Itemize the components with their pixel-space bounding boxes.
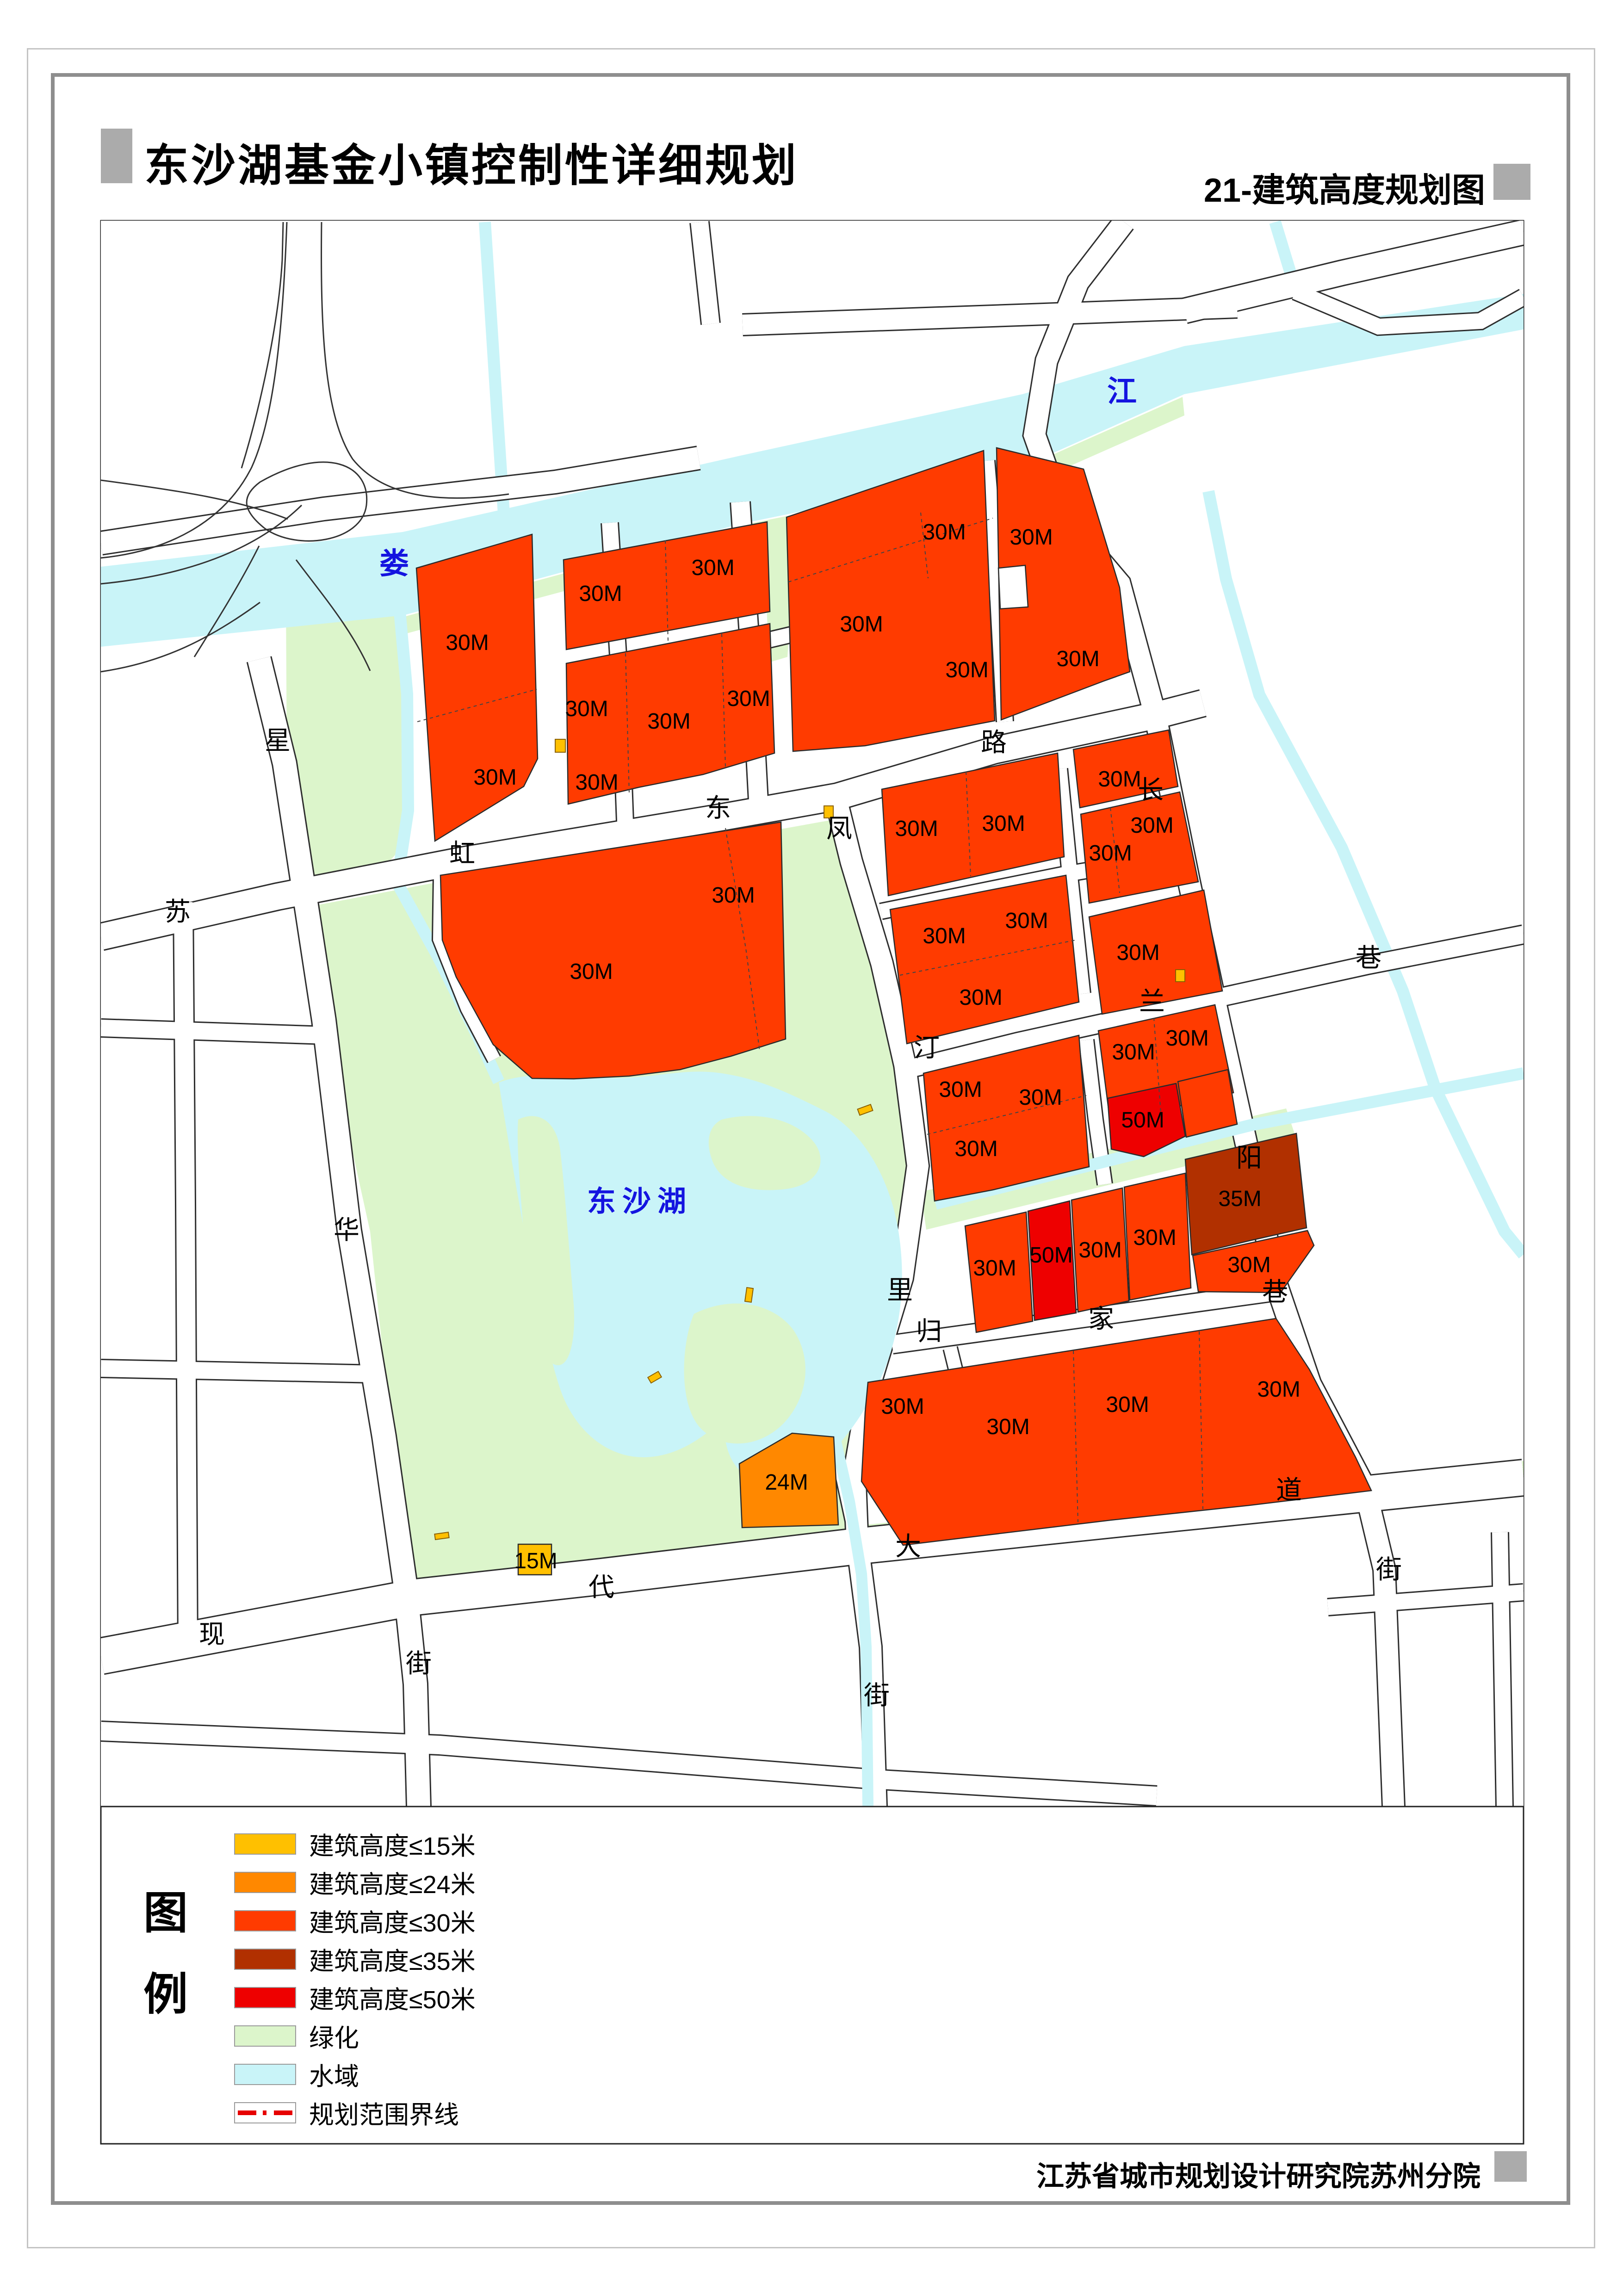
building-height-labels-item: 30M	[691, 556, 734, 580]
road-name-labels-item: 星	[265, 726, 291, 755]
legend-label: 绿化	[309, 2018, 359, 2054]
plan-sheet: 东沙湖基金小镇控制性详细规划 21-建筑高度规划图	[0, 0, 1623, 2296]
building-height-labels-item: 30M	[923, 520, 966, 545]
building-height-labels-item: 30M	[939, 1077, 982, 1102]
building-height-labels-item: 30M	[1133, 1225, 1176, 1250]
building-height-labels-item: 30M	[982, 811, 1025, 836]
building-height-labels-item: 30M	[923, 924, 966, 948]
legend-label: 建筑高度≤30米	[309, 1902, 476, 1939]
legend-label: 建筑高度≤50米	[309, 1979, 476, 2016]
legend-color-swatch	[234, 2025, 296, 2047]
legend-row: 建筑高度≤15米	[234, 1825, 476, 1863]
building-height-labels-item: 30M	[895, 817, 938, 841]
legend-label: 规划范围界线	[309, 2094, 459, 2131]
building-height-labels-item: 30M	[1056, 647, 1099, 671]
legend-row: 建筑高度≤35米	[234, 1940, 476, 1978]
legend-color-swatch	[234, 1987, 296, 2008]
road-name-labels-item: 凤	[826, 814, 852, 843]
road-name-labels-item: 家	[1088, 1304, 1114, 1333]
map-canvas: 苏虹东路星华街现代大道凤里街长阳街汀兰巷归家巷 娄江 东沙湖 30M30M30M…	[101, 221, 1524, 1807]
building-height-labels-item: 30M	[473, 765, 516, 790]
building-height-labels-item: 30M	[727, 687, 770, 711]
legend-label: 水域	[309, 2056, 359, 2092]
legend-row: 建筑高度≤30米	[234, 1901, 476, 1940]
building-height-labels-item: 30M	[575, 770, 618, 795]
parcel-30m	[1178, 1070, 1237, 1137]
building-height-labels-item: 30M	[986, 1415, 1029, 1439]
road-name-labels-item: 代	[588, 1572, 614, 1602]
road-name-labels-item: 汀	[914, 1033, 940, 1062]
road-name-labels-item: 路	[981, 728, 1007, 757]
road-name-labels-item: 巷	[1356, 943, 1381, 972]
legend-color-swatch	[234, 1833, 296, 1855]
building-height-labels-item: 30M	[1005, 909, 1048, 933]
legend-color-swatch	[234, 1949, 296, 1970]
building-height-labels-item: 30M	[1227, 1253, 1270, 1277]
building-height-labels-item: 30M	[959, 985, 1002, 1010]
legend: 图 例 建筑高度≤15米建筑高度≤24米建筑高度≤30米建筑高度≤35米建筑高度…	[101, 1818, 1524, 2142]
road-name-labels-item: 现	[199, 1620, 225, 1649]
building-height-labels-item: 30M	[1112, 1040, 1155, 1064]
legend-heading: 图 例	[143, 1873, 188, 2036]
building-height-labels-item: 50M	[1121, 1108, 1164, 1133]
building-height-labels-item: 35M	[1218, 1187, 1261, 1211]
building-height-labels-item: 30M	[647, 709, 690, 734]
legend-row: 水域	[234, 2055, 476, 2093]
river-name-labels-item: 娄	[379, 547, 409, 580]
road-name-labels-item: 苏	[165, 897, 191, 926]
lake-name-label: 东沙湖	[587, 1186, 693, 1218]
building-height-labels-item: 30M	[1089, 841, 1132, 866]
building-height-labels-item: 30M	[1106, 1392, 1149, 1417]
building-height-labels-item: 30M	[945, 658, 988, 682]
legend-color-swatch	[234, 1872, 296, 1893]
parcel-notch	[998, 565, 1028, 609]
road-name-labels-item: 里	[887, 1275, 913, 1305]
legend-label: 建筑高度≤35米	[309, 1941, 476, 1977]
legend-label: 建筑高度≤15米	[309, 1826, 476, 1862]
road-name-labels-item: 归	[916, 1317, 942, 1346]
footer-credit: 江苏省城市规划设计研究院苏州分院	[1036, 2154, 1481, 2194]
legend-color-swatch	[234, 2064, 296, 2085]
building-height-labels-item: 30M	[712, 883, 755, 908]
building-height-labels-item: 30M	[579, 582, 622, 606]
legend-items: 建筑高度≤15米建筑高度≤24米建筑高度≤30米建筑高度≤35米建筑高度≤50米…	[234, 1825, 476, 2132]
legend-row: 规划范围界线	[234, 2093, 476, 2132]
legend-row: 建筑高度≤24米	[234, 1863, 476, 1901]
legend-row: 建筑高度≤50米	[234, 1978, 476, 2017]
river-name-labels-item: 江	[1107, 375, 1137, 408]
building-height-labels-item: 30M	[881, 1394, 924, 1419]
road-name-labels-item: 阳	[1236, 1143, 1262, 1172]
planning-boundary-line	[238, 2110, 292, 2115]
road-name-labels-item: 街	[1376, 1555, 1402, 1584]
road-name-labels-item: 大	[895, 1532, 921, 1561]
road-name-labels-item: 街	[406, 1649, 432, 1678]
legend-boundary-swatch	[234, 2102, 296, 2123]
footer-accent-square	[1494, 2151, 1527, 2182]
building-height-labels-item: 30M	[954, 1137, 997, 1161]
building-height-labels-item: 30M	[1098, 767, 1141, 792]
road-name-labels-item: 虹	[449, 839, 475, 868]
building-height-labels-item: 24M	[765, 1470, 808, 1495]
legend-label: 建筑高度≤24米	[309, 1864, 476, 1900]
road-name-labels-item: 兰	[1139, 987, 1165, 1016]
building-height-labels-item: 30M	[570, 959, 613, 984]
road-name-labels-item: 华	[334, 1215, 359, 1244]
building-height-labels-item: 30M	[1130, 813, 1173, 838]
building-height-labels-item: 30M	[1165, 1026, 1208, 1051]
building-height-labels-item: 15M	[514, 1549, 557, 1573]
road-name-labels-item: 道	[1276, 1475, 1302, 1504]
building-height-labels-item: 50M	[1029, 1243, 1072, 1268]
building-height-labels-item: 30M	[840, 612, 883, 637]
legend-color-swatch	[234, 1910, 296, 1931]
building-height-labels-item: 30M	[1078, 1238, 1121, 1262]
road-name-labels-item: 街	[864, 1681, 890, 1710]
building-height-labels-item: 30M	[1257, 1377, 1300, 1402]
legend-row: 绿化	[234, 2017, 476, 2055]
building-height-labels-item: 30M	[1019, 1085, 1062, 1110]
building-height-labels-item: 30M	[1116, 941, 1159, 965]
lake-name-label-text: 东沙湖	[587, 1186, 693, 1218]
road-name-labels-item: 长	[1138, 775, 1164, 805]
building-height-labels-item: 30M	[973, 1256, 1016, 1281]
building-height-labels-item: 30M	[446, 631, 489, 655]
road-name-labels-item: 东	[705, 793, 731, 823]
building-height-labels-item: 30M	[1010, 525, 1053, 550]
road-name-labels-item: 巷	[1262, 1277, 1288, 1306]
building-height-labels-item: 30M	[565, 697, 608, 721]
